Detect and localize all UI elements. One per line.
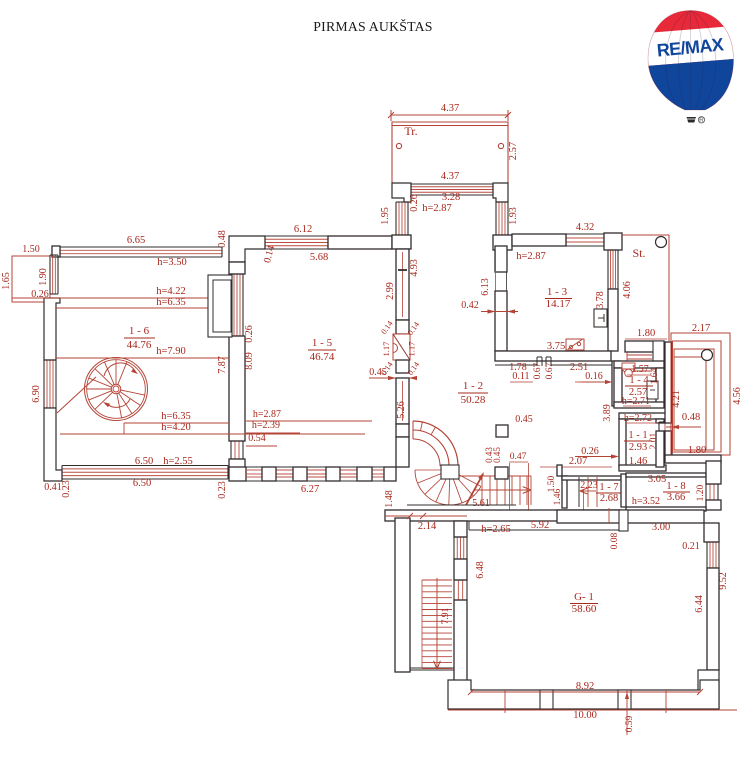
svg-text:44.76: 44.76: [127, 339, 152, 351]
svg-text:0.45: 0.45: [369, 367, 387, 378]
svg-text:h=2.87: h=2.87: [516, 251, 546, 262]
svg-text:0.67: 0.67: [545, 362, 555, 379]
svg-text:1 - 5: 1 - 5: [312, 337, 333, 349]
svg-text:2.93: 2.93: [629, 442, 647, 453]
svg-text:0.45: 0.45: [515, 414, 533, 425]
svg-text:6.48: 6.48: [475, 561, 486, 579]
svg-text:G- 1: G- 1: [574, 591, 594, 603]
svg-text:0.41: 0.41: [44, 482, 62, 493]
svg-text:0.45: 0.45: [492, 447, 502, 463]
svg-text:St.: St.: [632, 246, 645, 260]
svg-text:7.87: 7.87: [217, 356, 228, 374]
svg-text:0.26: 0.26: [409, 194, 420, 212]
svg-text:1 - 1: 1 - 1: [628, 430, 647, 441]
svg-text:1 - 3: 1 - 3: [547, 286, 568, 298]
svg-text:h=2.71: h=2.71: [622, 396, 650, 407]
svg-text:1 - 2: 1 - 2: [463, 380, 483, 392]
svg-text:3.00: 3.00: [652, 522, 670, 533]
svg-text:h=2.65: h=2.65: [481, 524, 511, 535]
svg-text:4.37: 4.37: [441, 171, 459, 182]
svg-text:4.93: 4.93: [409, 259, 420, 277]
svg-text:h=2.87: h=2.87: [422, 203, 452, 214]
svg-text:58.60: 58.60: [572, 603, 597, 615]
svg-text:9.52: 9.52: [718, 572, 729, 590]
svg-text:8.09: 8.09: [244, 352, 255, 370]
svg-text:0.48: 0.48: [217, 230, 228, 248]
svg-text:h=4.20: h=4.20: [161, 422, 191, 433]
svg-text:1 - 6: 1 - 6: [129, 325, 150, 337]
svg-text:4.21: 4.21: [671, 390, 682, 408]
svg-text:0.21: 0.21: [682, 541, 700, 552]
svg-text:6.44: 6.44: [694, 595, 705, 613]
svg-text:1.17: 1.17: [407, 342, 417, 357]
svg-text:6.50: 6.50: [133, 478, 151, 489]
svg-text:6.12: 6.12: [294, 224, 312, 235]
svg-text:50.28: 50.28: [461, 394, 486, 406]
svg-text:7.91: 7.91: [441, 607, 451, 624]
svg-text:46.74: 46.74: [310, 351, 335, 363]
svg-text:1.80: 1.80: [637, 328, 655, 339]
svg-text:4.37: 4.37: [441, 103, 459, 114]
svg-text:0.23: 0.23: [217, 481, 228, 499]
svg-text:3.78: 3.78: [595, 291, 606, 309]
svg-text:1.48: 1.48: [384, 490, 395, 508]
svg-text:2.99: 2.99: [385, 282, 396, 300]
svg-text:0.67: 0.67: [533, 362, 543, 379]
svg-text:1.57: 1.57: [631, 364, 649, 375]
svg-text:h=4.22: h=4.22: [156, 286, 186, 297]
svg-text:5.68: 5.68: [310, 252, 328, 263]
svg-text:3.05: 3.05: [648, 474, 666, 485]
svg-text:1.93: 1.93: [508, 207, 519, 225]
svg-text:R: R: [699, 117, 704, 124]
svg-text:h=7.90: h=7.90: [156, 346, 186, 357]
svg-text:h=6.35: h=6.35: [161, 411, 191, 422]
svg-text:8.92: 8.92: [576, 681, 594, 692]
svg-text:6.13: 6.13: [480, 278, 491, 296]
svg-text:4.32: 4.32: [576, 222, 594, 233]
svg-text:6.27: 6.27: [301, 484, 319, 495]
svg-text:Tr.: Tr.: [404, 124, 417, 138]
svg-text:2.57: 2.57: [508, 142, 519, 160]
svg-text:1 - 4: 1 - 4: [629, 375, 649, 386]
svg-text:2.01: 2.01: [649, 432, 659, 449]
svg-text:0.59: 0.59: [625, 715, 635, 732]
svg-text:1.46: 1.46: [629, 456, 647, 467]
svg-text:h=3.50: h=3.50: [157, 257, 187, 268]
svg-text:h=2.87: h=2.87: [253, 409, 281, 420]
svg-text:0.26: 0.26: [244, 325, 255, 343]
svg-text:2.68: 2.68: [600, 493, 618, 504]
svg-text:h=2.72: h=2.72: [624, 413, 652, 424]
svg-text:0.48: 0.48: [682, 412, 700, 423]
svg-text:2.17: 2.17: [692, 323, 710, 334]
svg-text:4.06: 4.06: [622, 281, 633, 299]
svg-text:0.23: 0.23: [61, 480, 72, 498]
svg-text:10.00: 10.00: [573, 710, 597, 721]
svg-text:0.54: 0.54: [248, 433, 266, 444]
svg-text:1.65: 1.65: [1, 272, 12, 290]
svg-text:3.75: 3.75: [547, 341, 565, 352]
svg-text:5.26: 5.26: [396, 401, 407, 419]
svg-text:5.61: 5.61: [472, 498, 490, 509]
svg-text:3.28: 3.28: [442, 192, 460, 203]
svg-text:1 - 7: 1 - 7: [599, 482, 618, 493]
svg-text:1.95: 1.95: [380, 207, 391, 225]
svg-text:2.14: 2.14: [418, 521, 437, 532]
svg-text:1.17: 1.17: [381, 342, 391, 357]
svg-text:6.65: 6.65: [127, 235, 145, 246]
svg-text:3.66: 3.66: [667, 492, 685, 503]
svg-text:0.47: 0.47: [510, 452, 527, 462]
svg-text:1.90: 1.90: [38, 268, 49, 286]
svg-text:5.92: 5.92: [531, 520, 549, 531]
svg-text:1.50: 1.50: [22, 244, 40, 255]
svg-text:2.07: 2.07: [569, 456, 587, 467]
svg-text:3.89: 3.89: [602, 404, 613, 422]
svg-text:0.42: 0.42: [461, 300, 479, 311]
svg-text:1.46: 1.46: [553, 488, 563, 505]
svg-text:0.08: 0.08: [610, 532, 620, 549]
svg-text:0.16: 0.16: [585, 371, 603, 382]
svg-text:0.11: 0.11: [512, 371, 529, 382]
svg-text:4.56: 4.56: [732, 387, 743, 405]
svg-text:14.17: 14.17: [546, 298, 571, 310]
svg-text:6.90: 6.90: [31, 385, 42, 403]
svg-text:1 - 8: 1 - 8: [666, 481, 685, 492]
svg-text:1.20: 1.20: [696, 484, 706, 501]
svg-text:h=6.35: h=6.35: [156, 297, 186, 308]
svg-text:h=2.39: h=2.39: [252, 420, 280, 431]
svg-text:h=3.52: h=3.52: [632, 496, 660, 507]
svg-text:1.64: 1.64: [650, 367, 660, 384]
svg-text:PIRMAS AUKŠTAS: PIRMAS AUKŠTAS: [313, 18, 432, 34]
